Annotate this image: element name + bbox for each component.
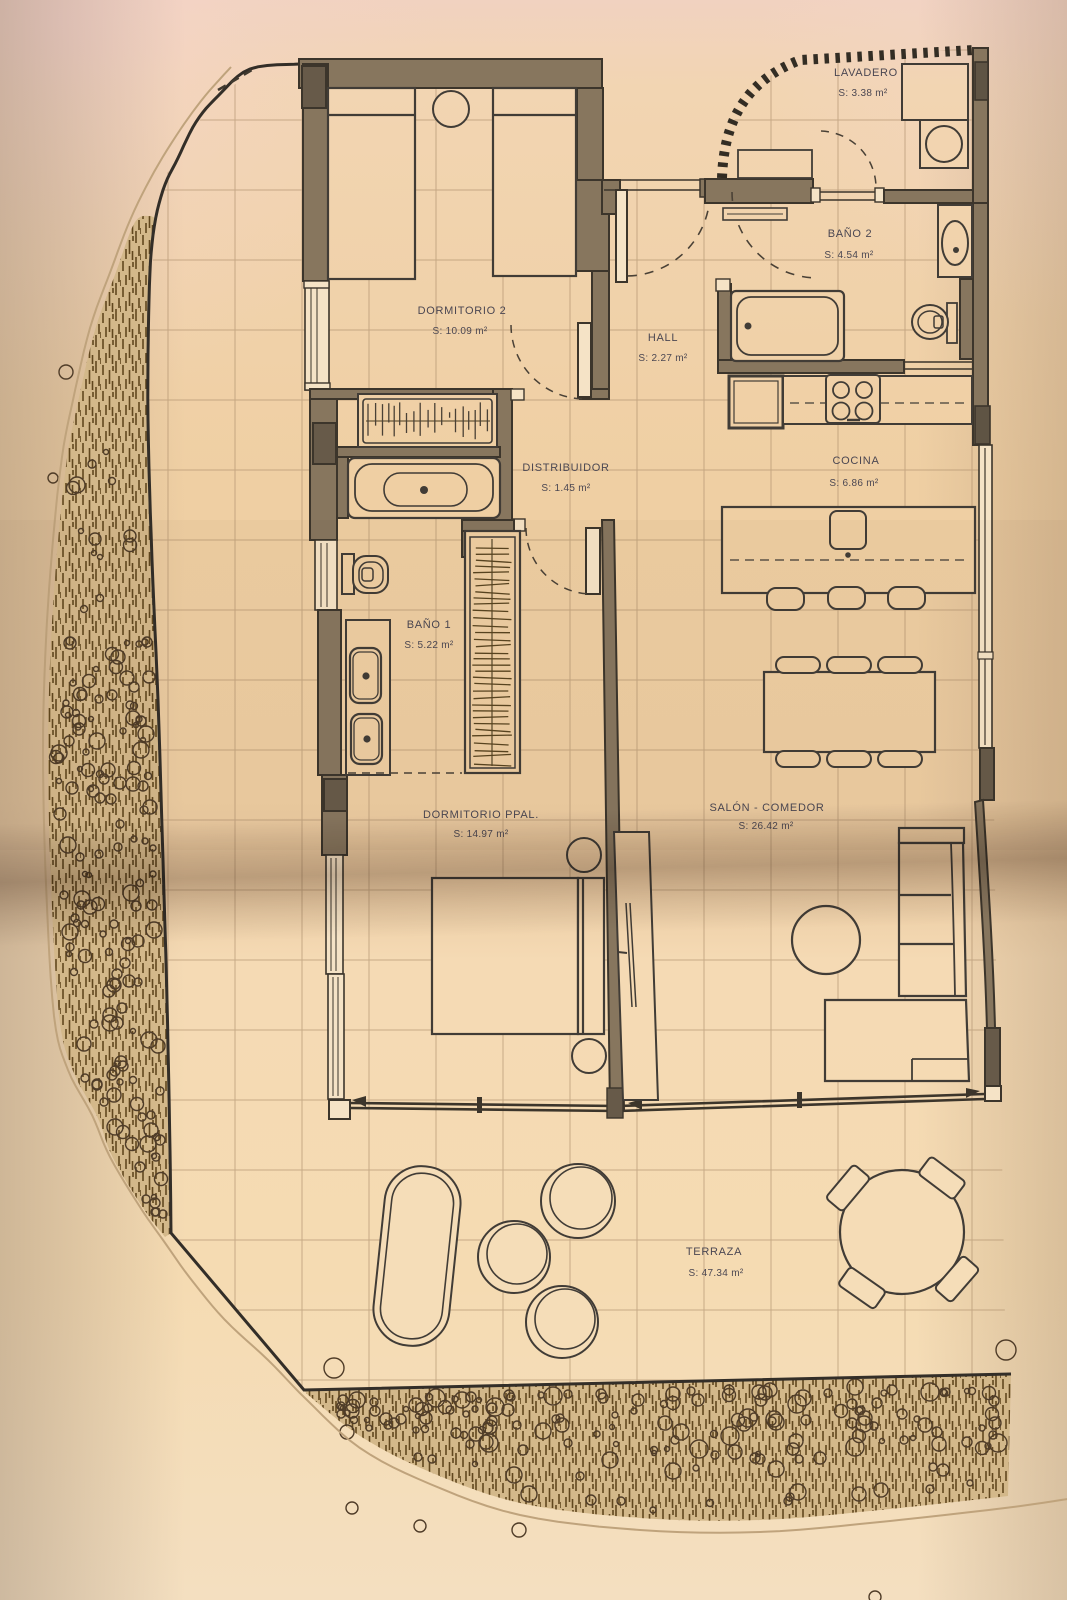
svg-text:HALL: HALL <box>648 332 678 344</box>
svg-text:DISTRIBUIDOR: DISTRIBUIDOR <box>522 462 609 474</box>
svg-text:S: 1.45 m²: S: 1.45 m² <box>541 483 590 494</box>
svg-text:LAVADERO: LAVADERO <box>834 67 898 79</box>
svg-text:S: 2.27 m²: S: 2.27 m² <box>638 353 687 364</box>
svg-text:S: 4.54 m²: S: 4.54 m² <box>824 250 873 261</box>
svg-text:S: 10.09 m²: S: 10.09 m² <box>433 326 488 337</box>
svg-text:BAÑO 2: BAÑO 2 <box>828 227 873 240</box>
svg-text:DORMITORIO 2: DORMITORIO 2 <box>418 305 507 317</box>
svg-text:S: 6.86 m²: S: 6.86 m² <box>829 478 878 489</box>
svg-text:S: 47.34 m²: S: 47.34 m² <box>689 1268 744 1279</box>
svg-text:S: 3.38 m²: S: 3.38 m² <box>838 88 887 99</box>
svg-text:COCINA: COCINA <box>833 455 880 467</box>
svg-text:TERRAZA: TERRAZA <box>686 1246 742 1258</box>
